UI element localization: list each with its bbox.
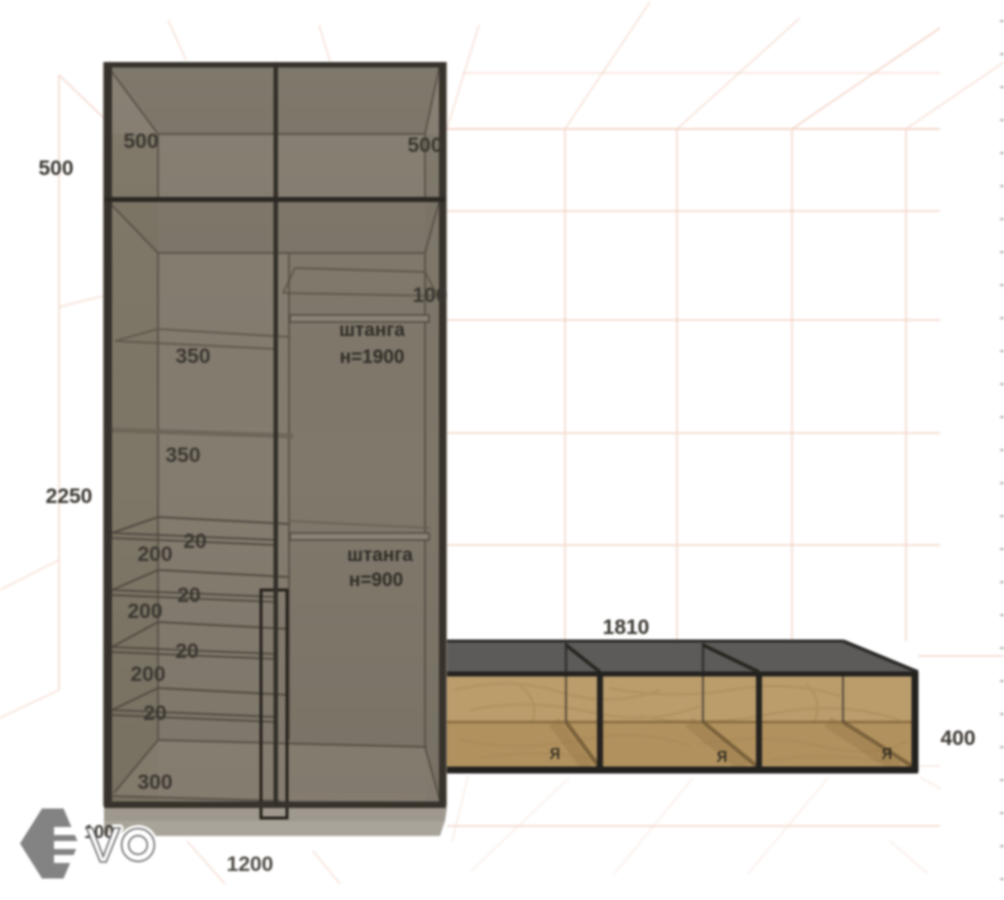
svg-text:н=1900: н=1900 [340, 347, 405, 368]
svg-text:200: 200 [130, 663, 165, 686]
svg-text:20: 20 [183, 530, 206, 553]
svg-text:штанга: штанга [339, 320, 405, 341]
svg-text:400: 400 [940, 727, 975, 750]
svg-text:20: 20 [175, 640, 198, 663]
svg-text:500: 500 [38, 157, 73, 180]
svg-text:2250: 2250 [46, 485, 93, 508]
svg-text:1810: 1810 [603, 616, 650, 639]
svg-text:100: 100 [412, 284, 447, 307]
svg-text:200: 200 [127, 600, 162, 623]
svg-text:350: 350 [165, 444, 200, 467]
svg-text:500: 500 [123, 130, 158, 153]
svg-text:300: 300 [137, 771, 172, 794]
svg-text:500: 500 [407, 134, 442, 157]
svg-text:я: я [882, 742, 893, 764]
svg-text:20: 20 [143, 702, 166, 725]
svg-text:1200: 1200 [227, 853, 274, 876]
svg-text:350: 350 [175, 345, 210, 368]
svg-text:200: 200 [137, 543, 172, 566]
svg-text:н=900: н=900 [349, 570, 403, 591]
svg-text:штанга: штанга [347, 545, 413, 566]
svg-text:я: я [717, 745, 728, 767]
svg-text:20: 20 [177, 584, 200, 607]
svg-text:я: я [550, 742, 561, 764]
